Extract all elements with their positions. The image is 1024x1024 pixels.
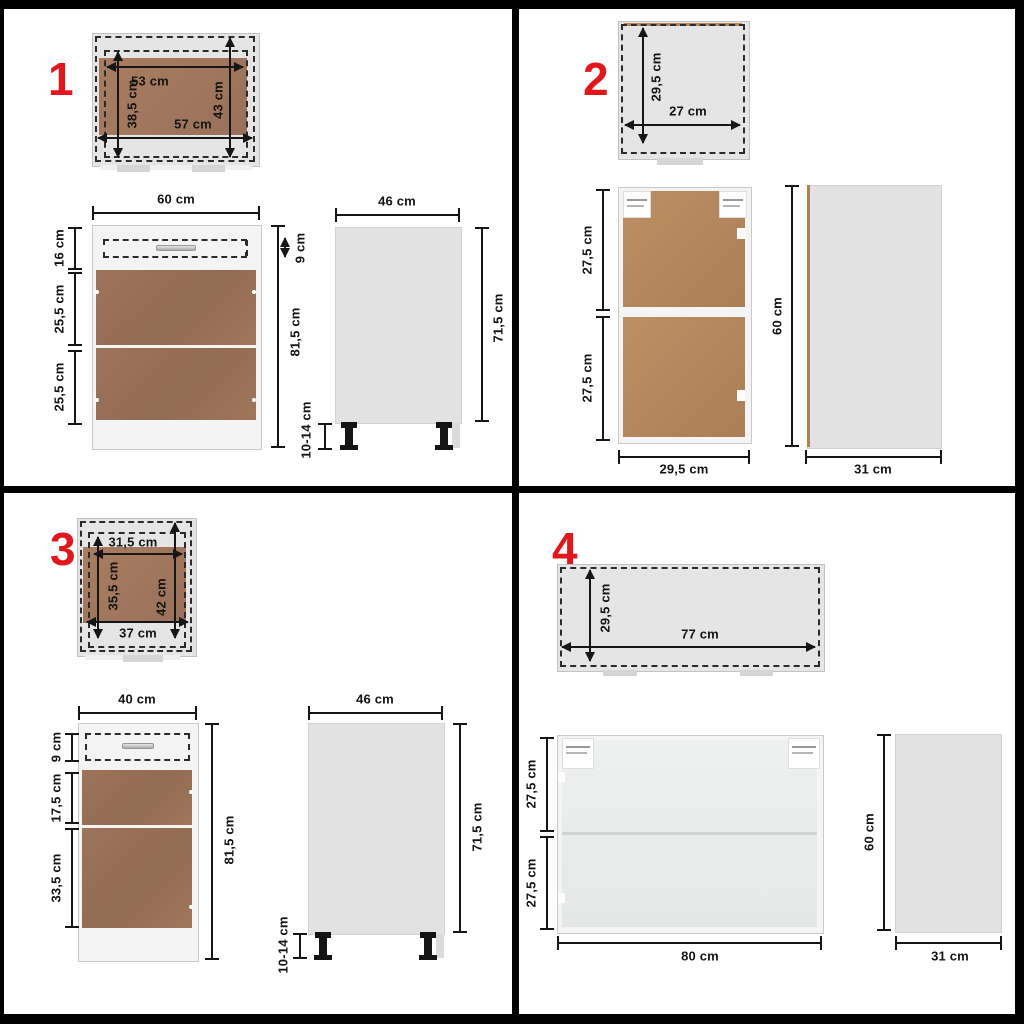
dim-line-60cm-side4: [883, 734, 885, 931]
panel-4-side-view: [895, 734, 1002, 933]
dim-line-27-5cm-top4: [546, 737, 548, 832]
panel-4-bracket-right: [788, 738, 820, 769]
dim-line-27-5cm-bottom4: [546, 836, 548, 930]
kitchen-cabinet-dimension-diagram: 1 53 cm 57 cm 38,5 cm 43 cm 60 cm 16 cm: [0, 0, 1024, 1024]
panel-4-top-tab-left: [603, 670, 637, 676]
panel-4-hinge-bottom: [558, 893, 565, 903]
dim-line-77cm: [562, 646, 815, 648]
panel-4-bracket-left: [562, 738, 594, 769]
dim-label-27-5cm-top4: 27,5 cm: [524, 759, 539, 808]
dim-line-31cm-side4: [895, 942, 1002, 944]
dim-label-29-5cm-top4: 29,5 cm: [598, 583, 613, 632]
dim-label-27-5cm-bottom4: 27,5 cm: [524, 858, 539, 907]
dim-label-60cm-side4: 60 cm: [862, 813, 877, 851]
dim-label-31cm-side4: 31 cm: [931, 949, 969, 964]
dim-line-80cm: [557, 942, 822, 944]
dim-label-77cm: 77 cm: [681, 627, 719, 642]
panel-4-section: 4 29,5 cm 77 cm 27,5 cm 27,5 cm 80 cm 60…: [0, 0, 1024, 1024]
dim-label-80cm: 80 cm: [681, 949, 719, 964]
panel-4-top-tab-right: [740, 670, 773, 676]
panel-4-hinge-top: [558, 772, 565, 782]
panel-4-front-shelf-line: [562, 832, 817, 835]
